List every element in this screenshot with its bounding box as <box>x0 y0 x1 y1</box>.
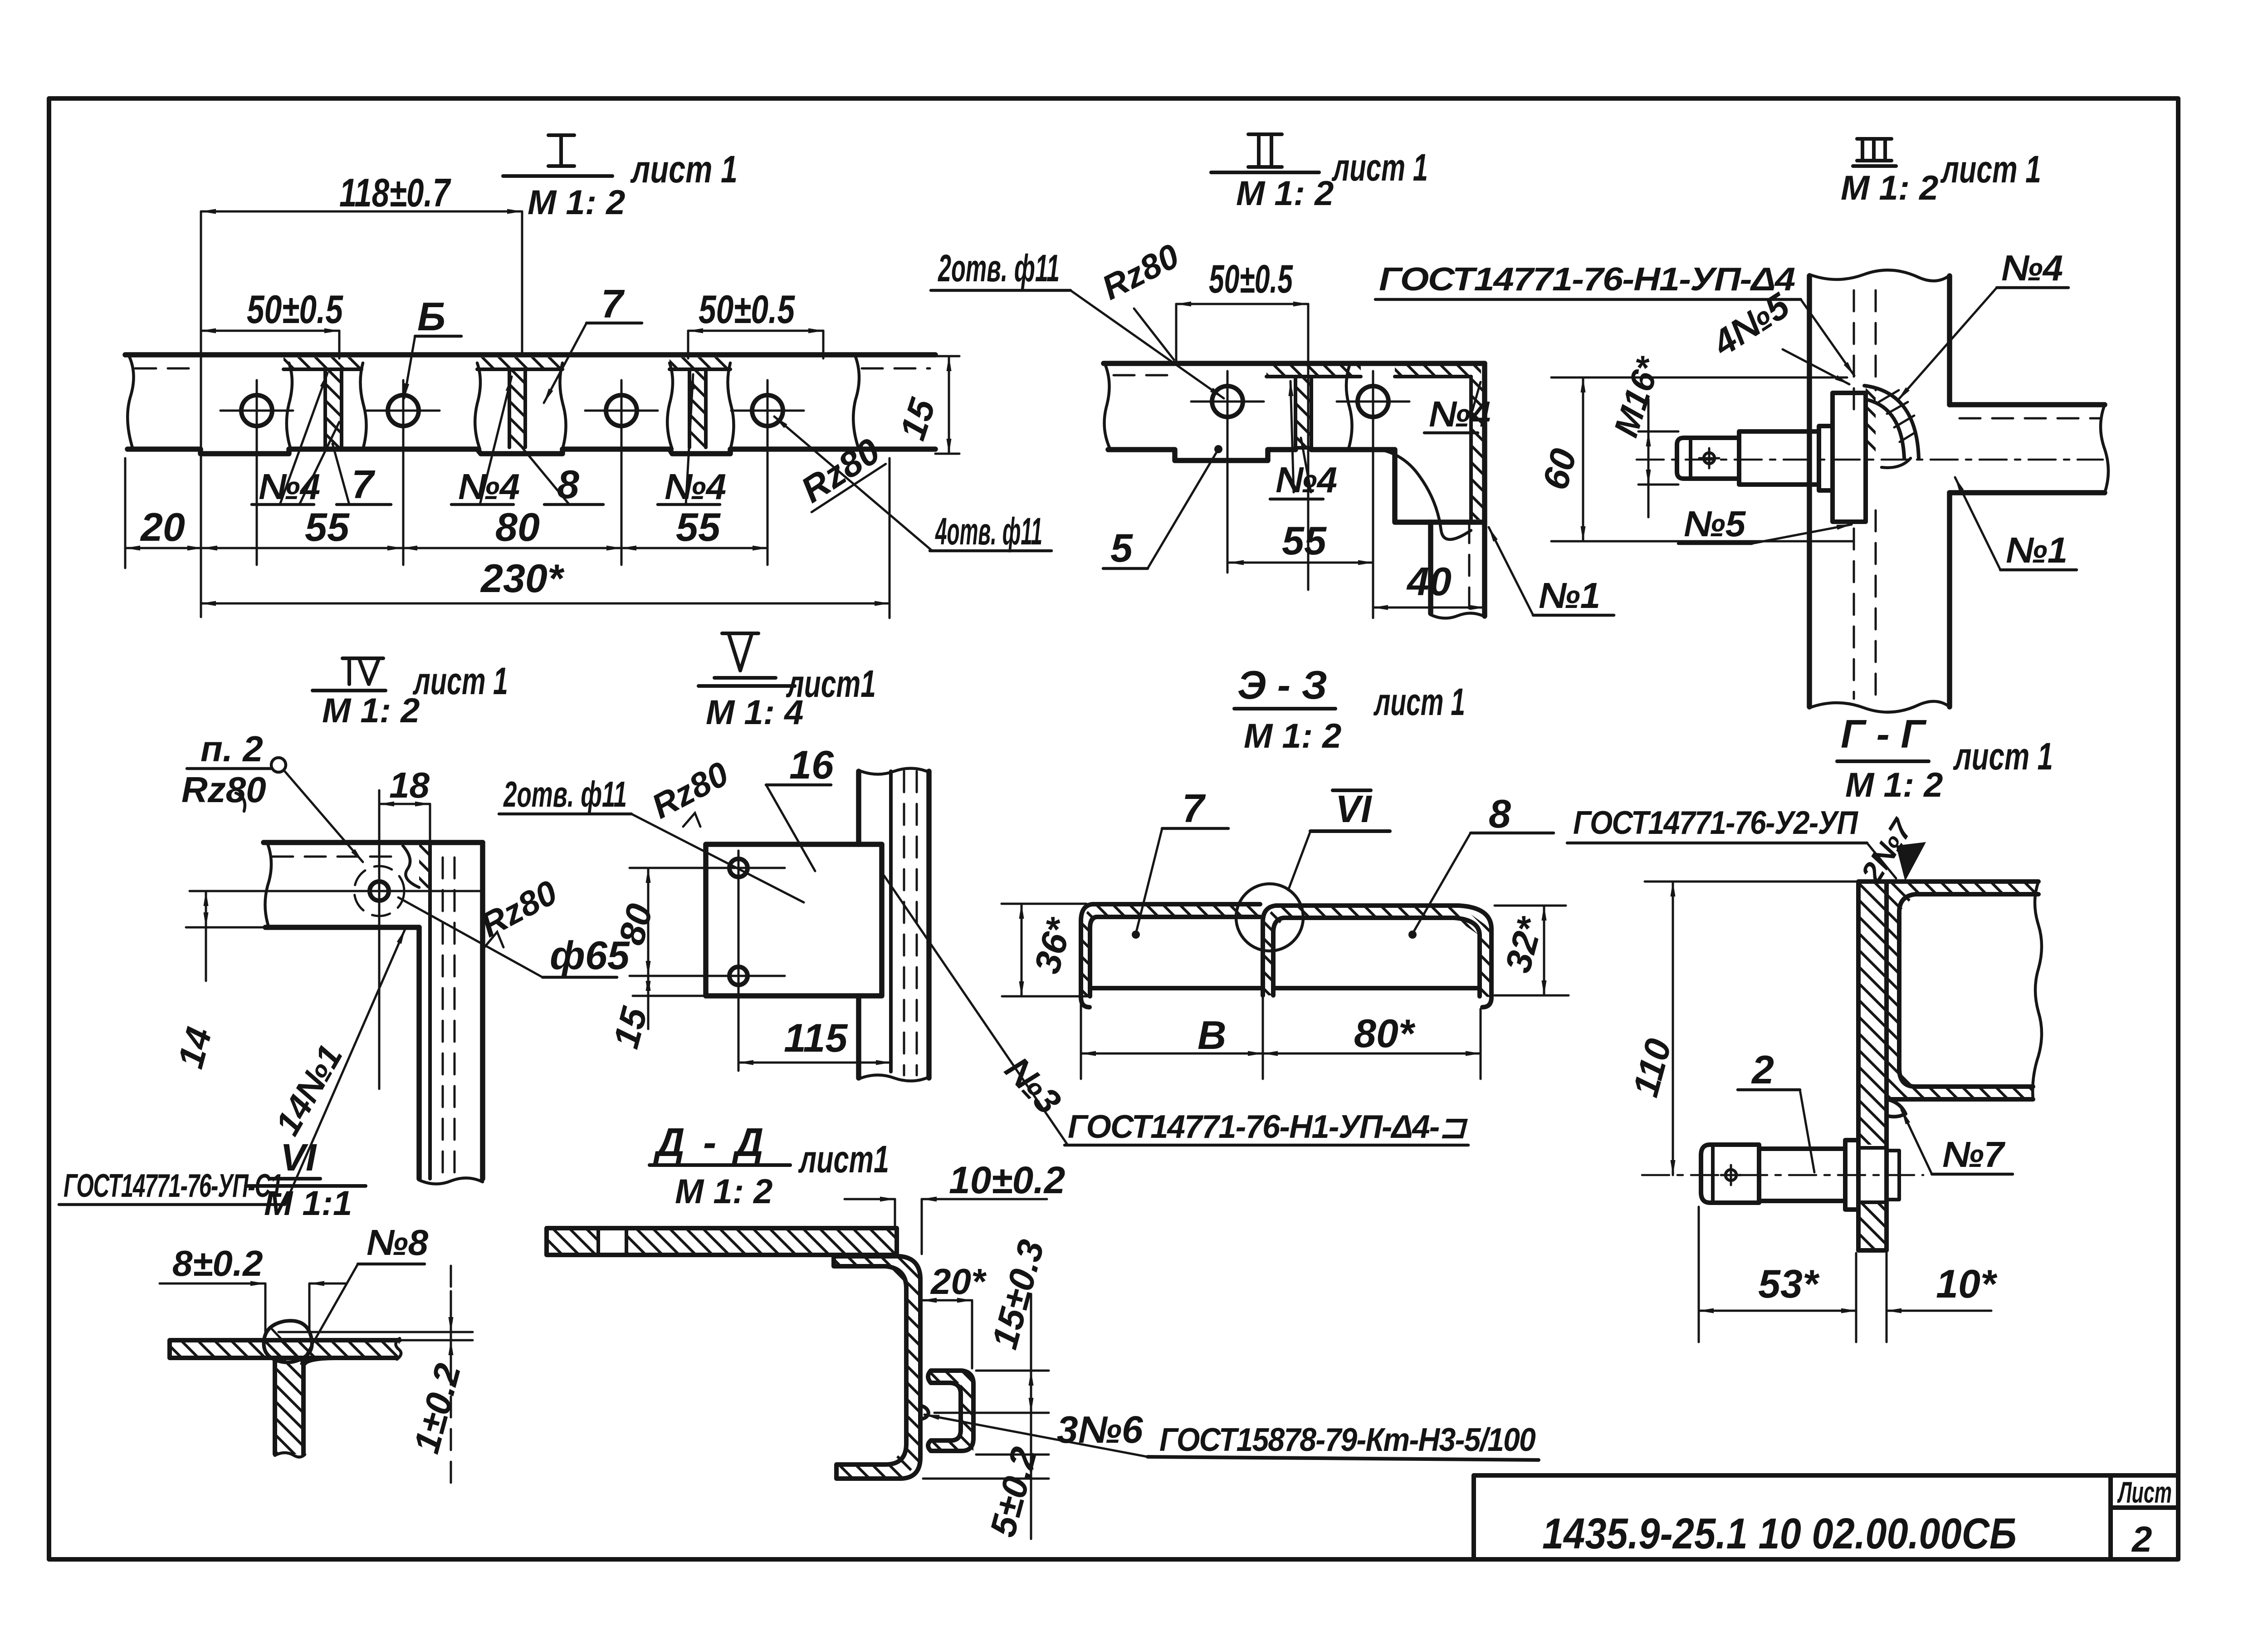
svg-text:М 1: 2: М 1: 2 <box>1236 174 1334 213</box>
svg-text:3№6: 3№6 <box>1057 1408 1144 1451</box>
svg-text:2отв. ф11: 2отв. ф11 <box>503 774 627 814</box>
svg-text:лист 1: лист 1 <box>1373 681 1465 723</box>
svg-text:80: 80 <box>495 505 540 549</box>
svg-text:Rz80: Rz80 <box>181 769 266 810</box>
svg-text:18: 18 <box>389 765 430 805</box>
svg-text:8: 8 <box>557 462 579 507</box>
svg-text:VI: VI <box>1335 788 1372 830</box>
svg-text:№4: №4 <box>1429 394 1491 434</box>
svg-text:2: 2 <box>1751 1047 1774 1092</box>
svg-text:М 1: 2: М 1: 2 <box>675 1172 772 1211</box>
svg-text:55: 55 <box>1282 518 1327 563</box>
svg-text:№4: №4 <box>259 466 320 507</box>
svg-text:118±0.7: 118±0.7 <box>339 170 451 215</box>
svg-text:М 1: 2: М 1: 2 <box>322 691 420 730</box>
svg-text:7: 7 <box>352 462 376 507</box>
svg-text:лист 1: лист 1 <box>1940 148 2041 191</box>
svg-text:10*: 10* <box>1936 1261 1998 1306</box>
svg-text:10±0.2: 10±0.2 <box>949 1159 1065 1201</box>
svg-text:ГОСТ14771-76-Н1-УП-Δ4-⊐: ГОСТ14771-76-Н1-УП-Δ4-⊐ <box>1068 1109 1468 1145</box>
svg-text:7: 7 <box>601 281 625 326</box>
svg-text:№1: №1 <box>2006 530 2068 570</box>
svg-text:8±0.2: 8±0.2 <box>172 1243 263 1283</box>
svg-text:№7: №7 <box>1942 1134 2006 1175</box>
svg-text:№8: №8 <box>367 1222 429 1263</box>
svg-text:Э - З: Э - З <box>1237 662 1327 707</box>
svg-text:ГОСТ14771-76-У2-УП: ГОСТ14771-76-У2-УП <box>1573 805 1859 841</box>
svg-text:VI: VI <box>280 1136 317 1179</box>
svg-text:4отв. ф11: 4отв. ф11 <box>935 510 1042 553</box>
svg-text:лист 1: лист 1 <box>1331 146 1428 189</box>
svg-text:20: 20 <box>140 505 185 549</box>
svg-text:М 1:1: М 1:1 <box>264 1184 352 1223</box>
svg-text:5: 5 <box>1110 525 1133 570</box>
svg-text:М 1: 2: М 1: 2 <box>1845 766 1943 804</box>
svg-text:50±0.5: 50±0.5 <box>699 287 795 332</box>
svg-text:50±0.5: 50±0.5 <box>1209 256 1293 301</box>
svg-text:2отв. ф11: 2отв. ф11 <box>938 247 1060 289</box>
svg-text:80*: 80* <box>1354 1011 1416 1056</box>
svg-text:Лист: Лист <box>2117 1475 2172 1509</box>
svg-text:М 1: 2: М 1: 2 <box>528 183 625 222</box>
svg-text:лист 1: лист 1 <box>1953 735 2053 778</box>
svg-text:п. 2: п. 2 <box>200 729 263 769</box>
svg-text:ГОСТ15878-79-Кт-Н3-5/100: ГОСТ15878-79-Кт-Н3-5/100 <box>1159 1422 1536 1458</box>
svg-text:1435.9-25.1 10 02.00.00СБ: 1435.9-25.1 10 02.00.00СБ <box>1542 1509 2017 1558</box>
svg-text:55: 55 <box>305 505 350 549</box>
svg-text:20*: 20* <box>930 1261 987 1302</box>
svg-text:115: 115 <box>784 1015 848 1060</box>
svg-text:40: 40 <box>1406 559 1452 604</box>
svg-text:7: 7 <box>1182 786 1206 831</box>
svg-text:№4: №4 <box>665 466 726 507</box>
svg-text:№1: №1 <box>1539 575 1600 616</box>
svg-text:ГОСТ14771-76-Н1-УП-Δ4: ГОСТ14771-76-Н1-УП-Δ4 <box>1379 261 1795 298</box>
svg-text:М 1: 2: М 1: 2 <box>1841 169 1938 207</box>
svg-text:Б: Б <box>417 294 445 339</box>
svg-text:В: В <box>1198 1013 1227 1058</box>
svg-text:53*: 53* <box>1758 1261 1820 1306</box>
svg-text:8: 8 <box>1489 791 1511 836</box>
svg-text:№4: №4 <box>2001 248 2063 288</box>
svg-text:230*: 230* <box>480 556 565 601</box>
svg-text:лист1: лист1 <box>786 662 876 705</box>
svg-text:№5: №5 <box>1684 504 1746 544</box>
svg-text:50±0.5: 50±0.5 <box>247 287 343 332</box>
svg-text:лист 1: лист 1 <box>630 148 738 191</box>
svg-text:лист 1: лист 1 <box>412 660 508 702</box>
svg-text:55: 55 <box>676 505 721 549</box>
svg-text:Д - Д: Д - Д <box>653 1120 767 1165</box>
svg-text:М 1: 2: М 1: 2 <box>1244 717 1341 755</box>
svg-text:Г - Г: Г - Г <box>1841 711 1927 756</box>
svg-text:16: 16 <box>789 742 834 787</box>
svg-text:2: 2 <box>2131 1519 2152 1559</box>
svg-text:лист1: лист1 <box>798 1138 889 1181</box>
